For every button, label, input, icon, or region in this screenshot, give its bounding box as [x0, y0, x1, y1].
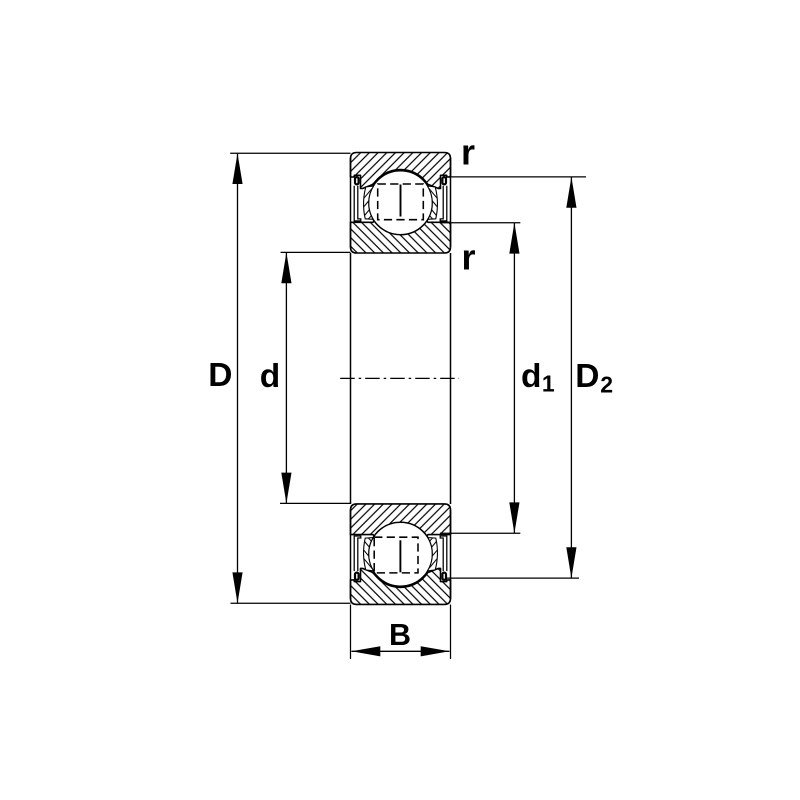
svg-text:B: B [389, 618, 411, 652]
svg-text:D: D [575, 358, 599, 395]
svg-text:r: r [461, 131, 475, 172]
svg-text:D: D [208, 357, 232, 394]
svg-text:r: r [462, 236, 476, 277]
svg-text:d: d [260, 358, 280, 395]
svg-text:2: 2 [600, 371, 613, 397]
svg-text:d: d [521, 358, 541, 395]
svg-text:1: 1 [542, 371, 555, 397]
